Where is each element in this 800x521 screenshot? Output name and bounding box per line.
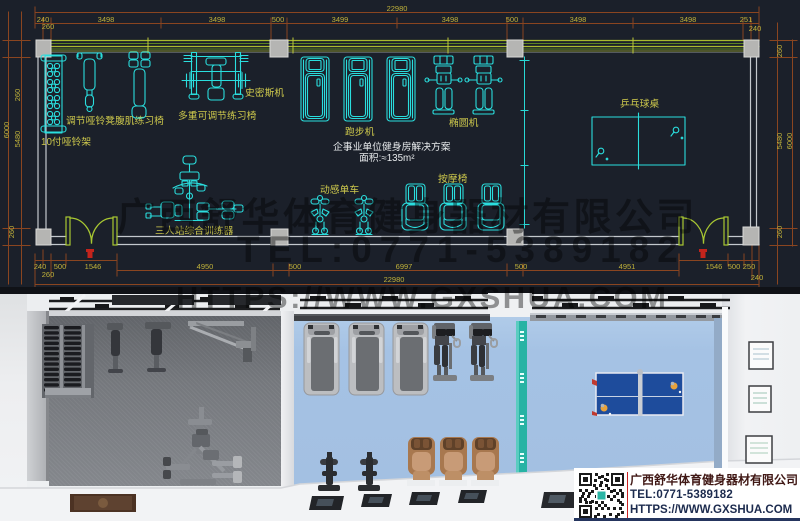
svg-text:4950: 4950 xyxy=(197,262,214,271)
svg-text:500: 500 xyxy=(54,262,67,271)
svg-text:3498: 3498 xyxy=(442,15,459,24)
svg-text:史密斯机: 史密斯机 xyxy=(245,86,284,99)
svg-text:500: 500 xyxy=(506,15,519,24)
svg-text:250: 250 xyxy=(743,262,756,271)
svg-text:260: 260 xyxy=(42,22,55,31)
svg-text:5480: 5480 xyxy=(13,131,22,148)
svg-text:260: 260 xyxy=(42,270,55,279)
svg-text:乒乓球桌: 乒乓球桌 xyxy=(620,97,659,110)
svg-text:240: 240 xyxy=(751,273,764,282)
svg-text:3498: 3498 xyxy=(209,15,226,24)
svg-text:260: 260 xyxy=(7,226,16,239)
svg-text:3499: 3499 xyxy=(332,15,349,24)
svg-text:260: 260 xyxy=(775,45,784,58)
svg-text:3498: 3498 xyxy=(98,15,115,24)
svg-text:企事业单位健身房解决方案: 企事业单位健身房解决方案 xyxy=(333,140,451,153)
svg-text:6000: 6000 xyxy=(2,122,11,139)
svg-text:3498: 3498 xyxy=(680,15,697,24)
svg-text:22980: 22980 xyxy=(387,4,408,13)
svg-text:500: 500 xyxy=(272,15,285,24)
svg-text:腹肌练习椅: 腹肌练习椅 xyxy=(115,114,164,127)
svg-text:1546: 1546 xyxy=(706,262,723,271)
svg-text:500: 500 xyxy=(728,262,741,271)
svg-text:10付哑铃架: 10付哑铃架 xyxy=(41,135,91,148)
svg-text:按摩椅: 按摩椅 xyxy=(438,172,468,185)
svg-text:260: 260 xyxy=(13,89,22,102)
svg-text:3498: 3498 xyxy=(570,15,587,24)
svg-text:调节哑铃凳: 调节哑铃凳 xyxy=(66,114,115,127)
svg-text:跑步机: 跑步机 xyxy=(345,125,375,138)
svg-text:5480: 5480 xyxy=(775,133,784,150)
svg-text:多重可调节练习椅: 多重可调节练习椅 xyxy=(178,109,257,122)
svg-text:251: 251 xyxy=(740,15,753,24)
svg-text:椭圆机: 椭圆机 xyxy=(449,116,479,129)
svg-text:6000: 6000 xyxy=(785,133,794,150)
svg-text:260: 260 xyxy=(775,226,784,239)
svg-text:面积:≈135m²: 面积:≈135m² xyxy=(359,152,415,164)
svg-text:240: 240 xyxy=(749,24,762,33)
svg-text:1546: 1546 xyxy=(85,262,102,271)
